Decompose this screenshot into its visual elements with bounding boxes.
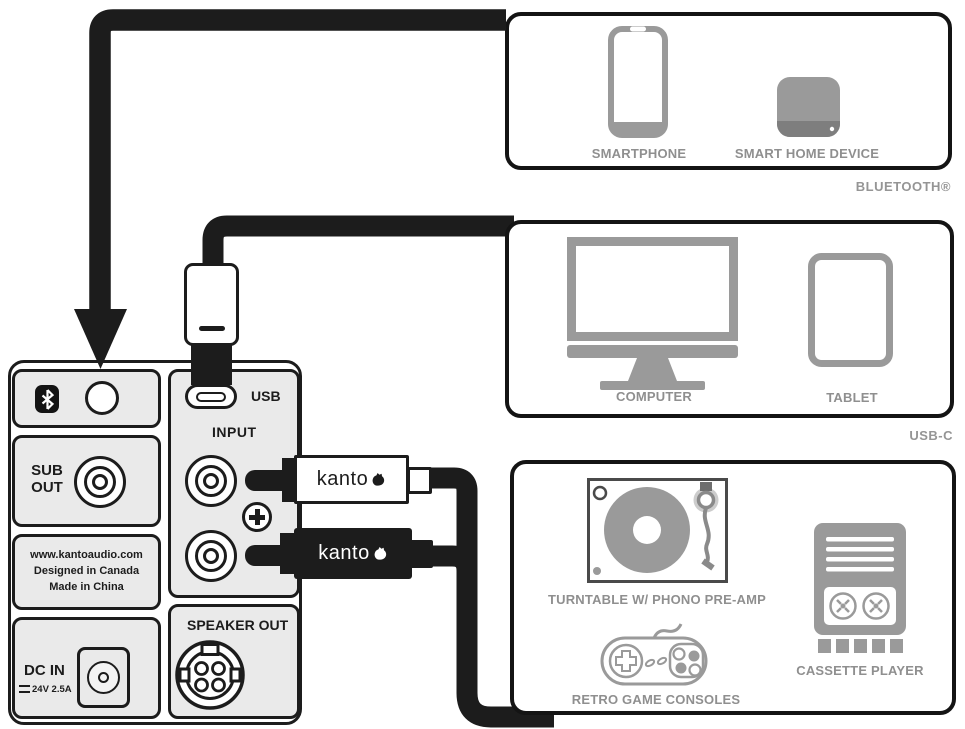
dc-in-label: DC IN bbox=[24, 662, 65, 679]
dc-in-jack[interactable] bbox=[77, 647, 130, 708]
smartphone-icon bbox=[608, 26, 668, 138]
computer-label: COMPUTER bbox=[579, 389, 729, 404]
info-section: www.kantoaudio.com Designed in Canada Ma… bbox=[12, 534, 161, 610]
kanto-logo-icon bbox=[371, 472, 386, 487]
turntable-label: TURNTABLE W/ PHONO PRE-AMP bbox=[528, 592, 786, 607]
smartphone-label: SMARTPHONE bbox=[560, 146, 718, 161]
rca-plug-white-tip bbox=[407, 467, 432, 494]
sub-out-jack[interactable] bbox=[74, 456, 126, 508]
sub-out-section: SUB OUT bbox=[12, 435, 161, 527]
bluetooth-pair-button[interactable] bbox=[85, 381, 119, 415]
info-made: Made in China bbox=[15, 580, 158, 596]
bluetooth-section bbox=[12, 369, 161, 428]
usb-plug-neck bbox=[191, 344, 232, 385]
rca-input-jack-top[interactable] bbox=[185, 455, 237, 507]
computer-icon bbox=[567, 237, 738, 390]
dc-symbol-icon bbox=[19, 685, 30, 693]
rca-plug-white[interactable]: kanto bbox=[294, 455, 409, 504]
bluetooth-caption: BLUETOOTH® bbox=[505, 179, 951, 194]
cassette-player-icon bbox=[812, 523, 908, 653]
tablet-label: TABLET bbox=[779, 390, 925, 405]
dc-in-section: DC IN 24V 2.5A bbox=[12, 617, 161, 719]
info-url: www.kantoaudio.com bbox=[15, 548, 158, 564]
dc-in-spec: 24V 2.5A bbox=[19, 684, 72, 695]
tablet-icon bbox=[808, 253, 893, 367]
rca-plug-black[interactable]: kanto bbox=[294, 528, 412, 579]
sub-out-label: SUB OUT bbox=[25, 462, 69, 496]
input-label: INPUT bbox=[212, 424, 257, 440]
speaker-out-label: SPEAKER OUT bbox=[187, 617, 288, 633]
speaker-out-connector[interactable] bbox=[173, 638, 247, 712]
usbc-caption: USB-C bbox=[505, 428, 953, 443]
kanto-brand-text: kanto bbox=[317, 468, 368, 491]
screw-icon bbox=[242, 502, 272, 532]
usb-port-label: USB bbox=[251, 388, 281, 404]
bluetooth-icon bbox=[35, 385, 59, 413]
usb-plug[interactable] bbox=[184, 263, 239, 346]
info-designed: Designed in Canada bbox=[15, 564, 158, 580]
connection-diagram: SMARTPHONE SMART HOME DEVICE BLUETOOTH® … bbox=[0, 0, 965, 729]
usb-cable bbox=[213, 226, 514, 272]
rca-cable-black bbox=[430, 556, 467, 610]
speaker-out-section: SPEAKER OUT bbox=[168, 604, 300, 719]
kanto-logo-icon bbox=[373, 546, 388, 561]
rca-plug-black-tip bbox=[410, 540, 433, 568]
rca-input-jack-bottom[interactable] bbox=[185, 530, 237, 582]
usb-plug-marking bbox=[199, 326, 225, 331]
smart-home-device-label: SMART HOME DEVICE bbox=[716, 146, 898, 161]
kanto-brand-text: kanto bbox=[318, 542, 369, 565]
cassette-player-label: CASSETTE PLAYER bbox=[775, 663, 945, 678]
smart-home-device-icon bbox=[777, 77, 840, 137]
game-controller-icon bbox=[598, 618, 710, 686]
speaker-rear-panel: SUB OUT www.kantoaudio.com Designed in C… bbox=[8, 360, 302, 725]
usb-c-port[interactable] bbox=[185, 384, 237, 409]
retro-game-consoles-label: RETRO GAME CONSOLES bbox=[545, 692, 767, 707]
turntable-icon bbox=[587, 478, 728, 583]
